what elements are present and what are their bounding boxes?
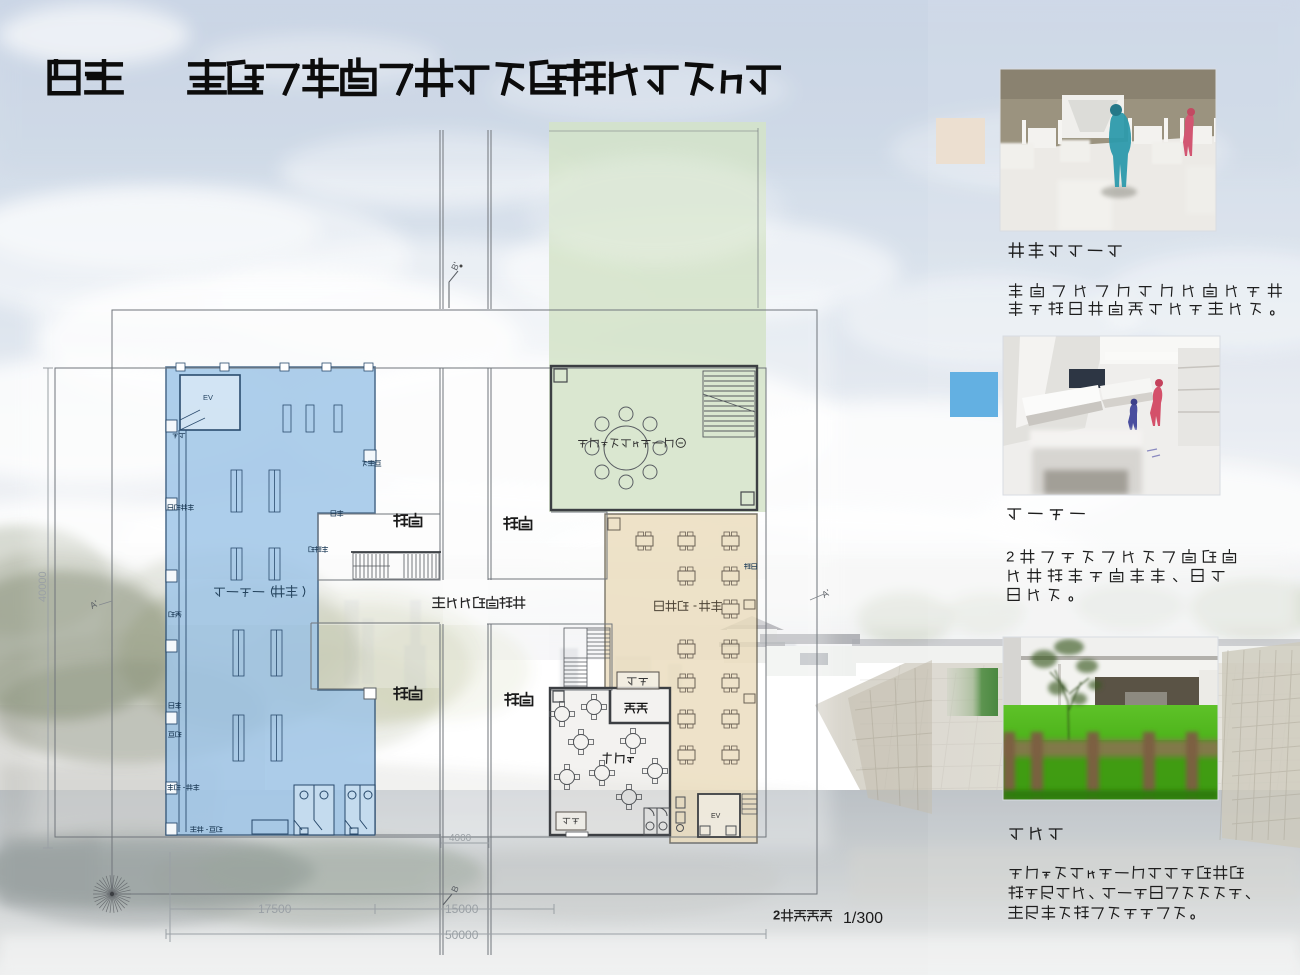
svg-text:50000: 50000 <box>445 928 479 942</box>
svg-text:40000: 40000 <box>37 571 49 602</box>
svg-text:2: 2 <box>773 908 780 923</box>
svg-text:17500: 17500 <box>258 902 292 916</box>
svg-text:2: 2 <box>1006 549 1019 566</box>
svg-text:15000: 15000 <box>445 902 479 916</box>
svg-text:4000: 4000 <box>449 833 472 844</box>
svg-text:EV: EV <box>711 813 721 820</box>
svg-text:1/300: 1/300 <box>843 910 883 927</box>
svg-text:EV: EV <box>203 393 213 402</box>
